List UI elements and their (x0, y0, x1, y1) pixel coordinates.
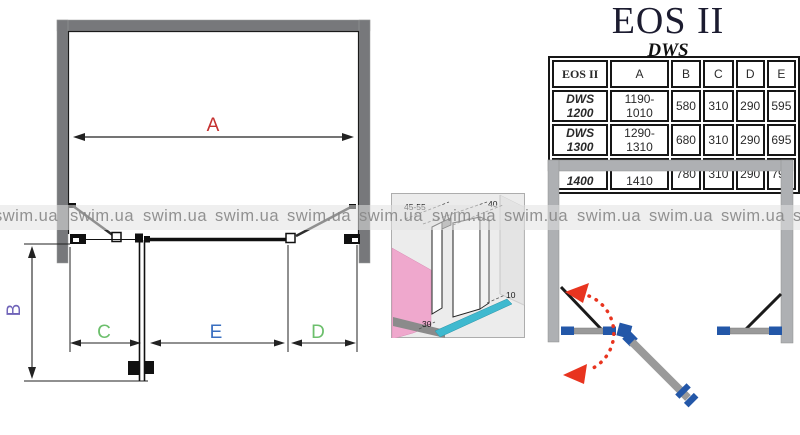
detail-dim-10: 10 (506, 290, 516, 300)
right-panel-assembly (717, 294, 782, 335)
door-panel (632, 342, 688, 398)
value-a: 1190-1010 (610, 90, 669, 122)
header-c: C (703, 60, 733, 88)
bracket-notch (73, 238, 79, 242)
value-d: 290 (736, 90, 765, 122)
bar-fitting (286, 234, 295, 243)
series-title: EOS II (540, 0, 796, 42)
watermark: swim.ua (0, 207, 58, 226)
watermark: swim.ua (504, 207, 568, 226)
arrowhead (345, 340, 356, 347)
left-wall (548, 160, 559, 342)
arrowhead (70, 340, 81, 347)
table-header-row: EOS II A B C D E (552, 60, 796, 88)
header-e: E (767, 60, 796, 88)
walls (548, 160, 793, 343)
bracket-notch (352, 238, 358, 242)
dim-label-a: A (207, 115, 220, 136)
door-handle (145, 361, 154, 374)
watermark: swim.ua (432, 207, 496, 226)
value-e: 595 (767, 90, 796, 122)
profile-front-slab (453, 217, 480, 317)
wall-profile (432, 217, 489, 317)
model-cell: DWS 1200 (552, 90, 608, 122)
dimension-b (24, 244, 148, 381)
door-handle (128, 361, 139, 375)
watermark: swim.ua (577, 207, 641, 226)
watermark: swim.ua (287, 207, 351, 226)
watermark: swim.ua (215, 207, 279, 226)
swing-arrowhead (563, 364, 587, 384)
arrowhead (28, 246, 36, 258)
detail-dim-30: 30 (422, 319, 432, 329)
header-b: B (671, 60, 701, 88)
dim-label-c: C (97, 322, 111, 343)
watermark: swim.ua (721, 207, 785, 226)
watermark: swim.ua (359, 207, 423, 226)
door-swing-diagram (540, 150, 800, 435)
header-a: A (610, 60, 669, 88)
arrowhead (150, 340, 161, 347)
watermark: swim.ua (143, 207, 207, 226)
arrowhead (73, 133, 85, 141)
dim-label-b: B (4, 304, 25, 317)
dim-label-e: E (210, 322, 223, 343)
watermark-band: swim.ua swim.ua swim.ua swim.ua swim.ua … (0, 205, 800, 230)
arrowhead (342, 133, 354, 141)
fixed-panel (730, 328, 771, 334)
watermark: swim.ua (793, 207, 800, 226)
arrowhead (274, 340, 285, 347)
bar-fitting (112, 233, 121, 242)
swinging-door (632, 342, 698, 407)
page: A B C E (0, 0, 800, 435)
swing-arrowhead (565, 283, 589, 303)
header-model: EOS II (552, 60, 608, 88)
value-c: 310 (703, 90, 733, 122)
header-d: D (736, 60, 765, 88)
title-block: EOS II DWS (540, 0, 796, 62)
dim-label-d: D (311, 322, 325, 343)
support-bar (746, 294, 781, 329)
top-wall (548, 160, 793, 171)
wall-fitting (769, 327, 782, 336)
top-wall (57, 20, 370, 31)
panel-fitting (717, 327, 730, 336)
profile-back-slab (432, 222, 442, 314)
arrowhead (291, 340, 302, 347)
table-row: DWS 1200 1190-1010 580 310 290 595 (552, 90, 796, 122)
right-wall (781, 160, 793, 343)
watermark: swim.ua (70, 207, 134, 226)
fixed-panel (574, 328, 603, 334)
value-b: 580 (671, 90, 701, 122)
watermark: swim.ua (649, 207, 713, 226)
arrowhead (28, 367, 36, 379)
wall-fitting (561, 327, 574, 336)
profile-side-face (480, 217, 489, 309)
